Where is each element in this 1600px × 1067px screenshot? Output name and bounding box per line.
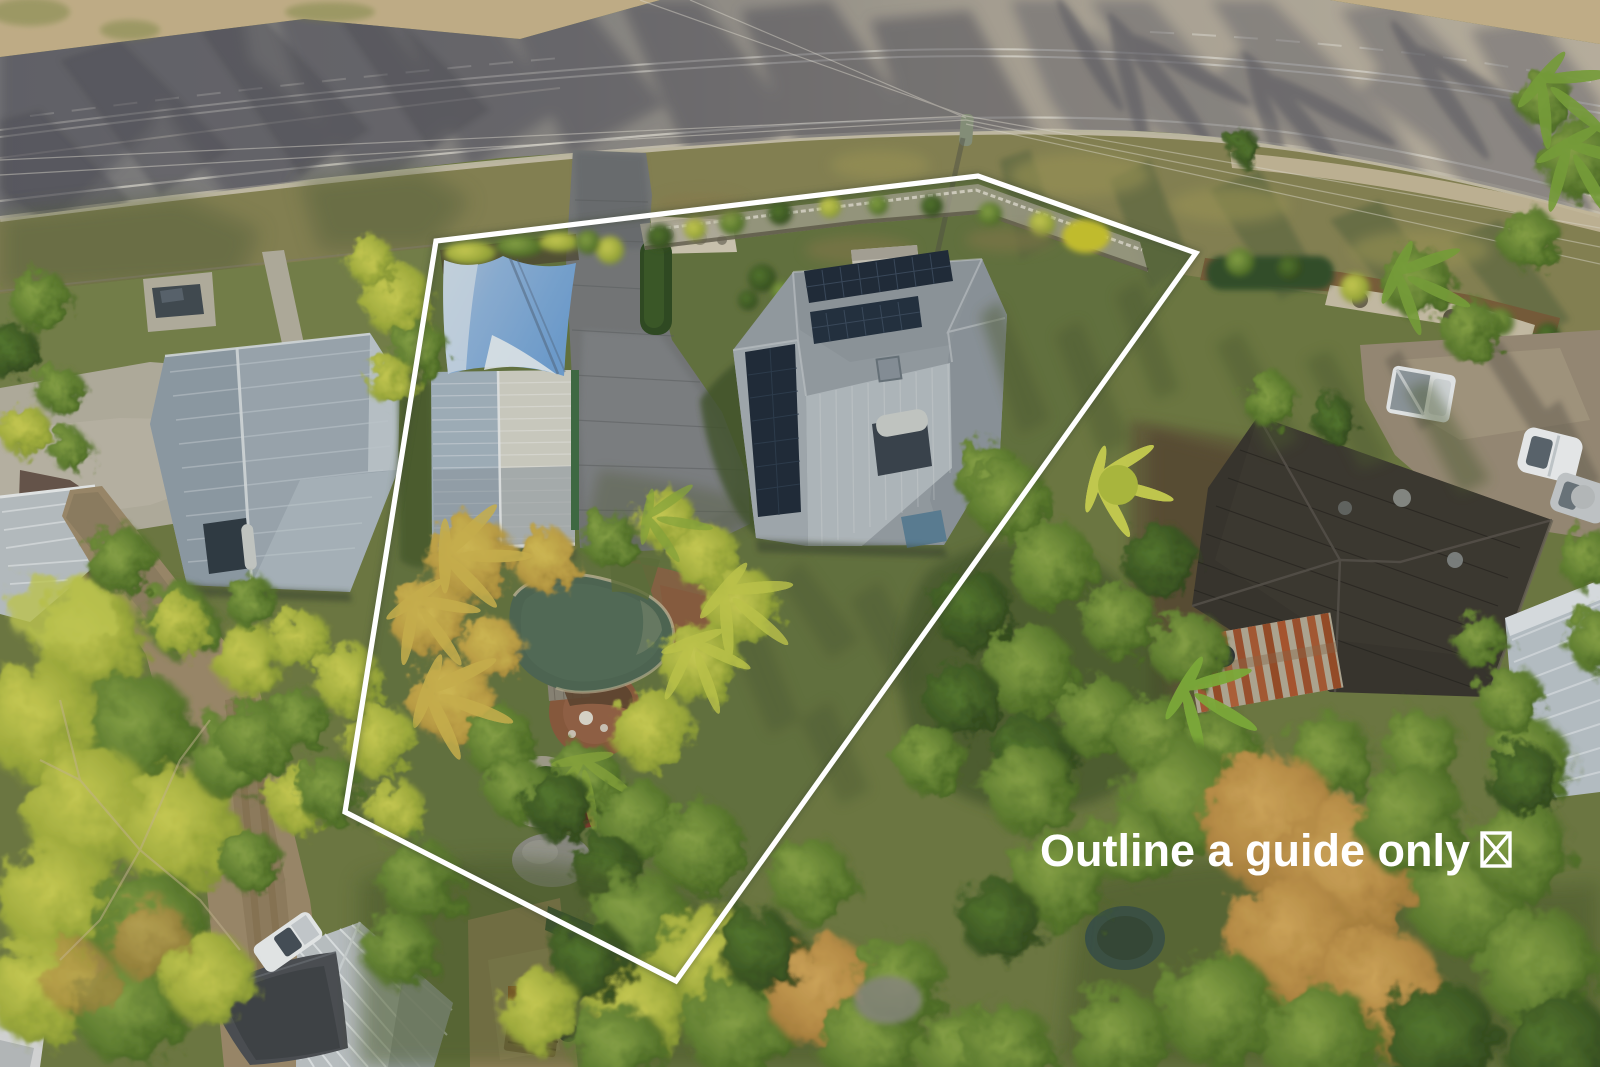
svg-text:Outline a guide only: Outline a guide only [1040,825,1470,876]
